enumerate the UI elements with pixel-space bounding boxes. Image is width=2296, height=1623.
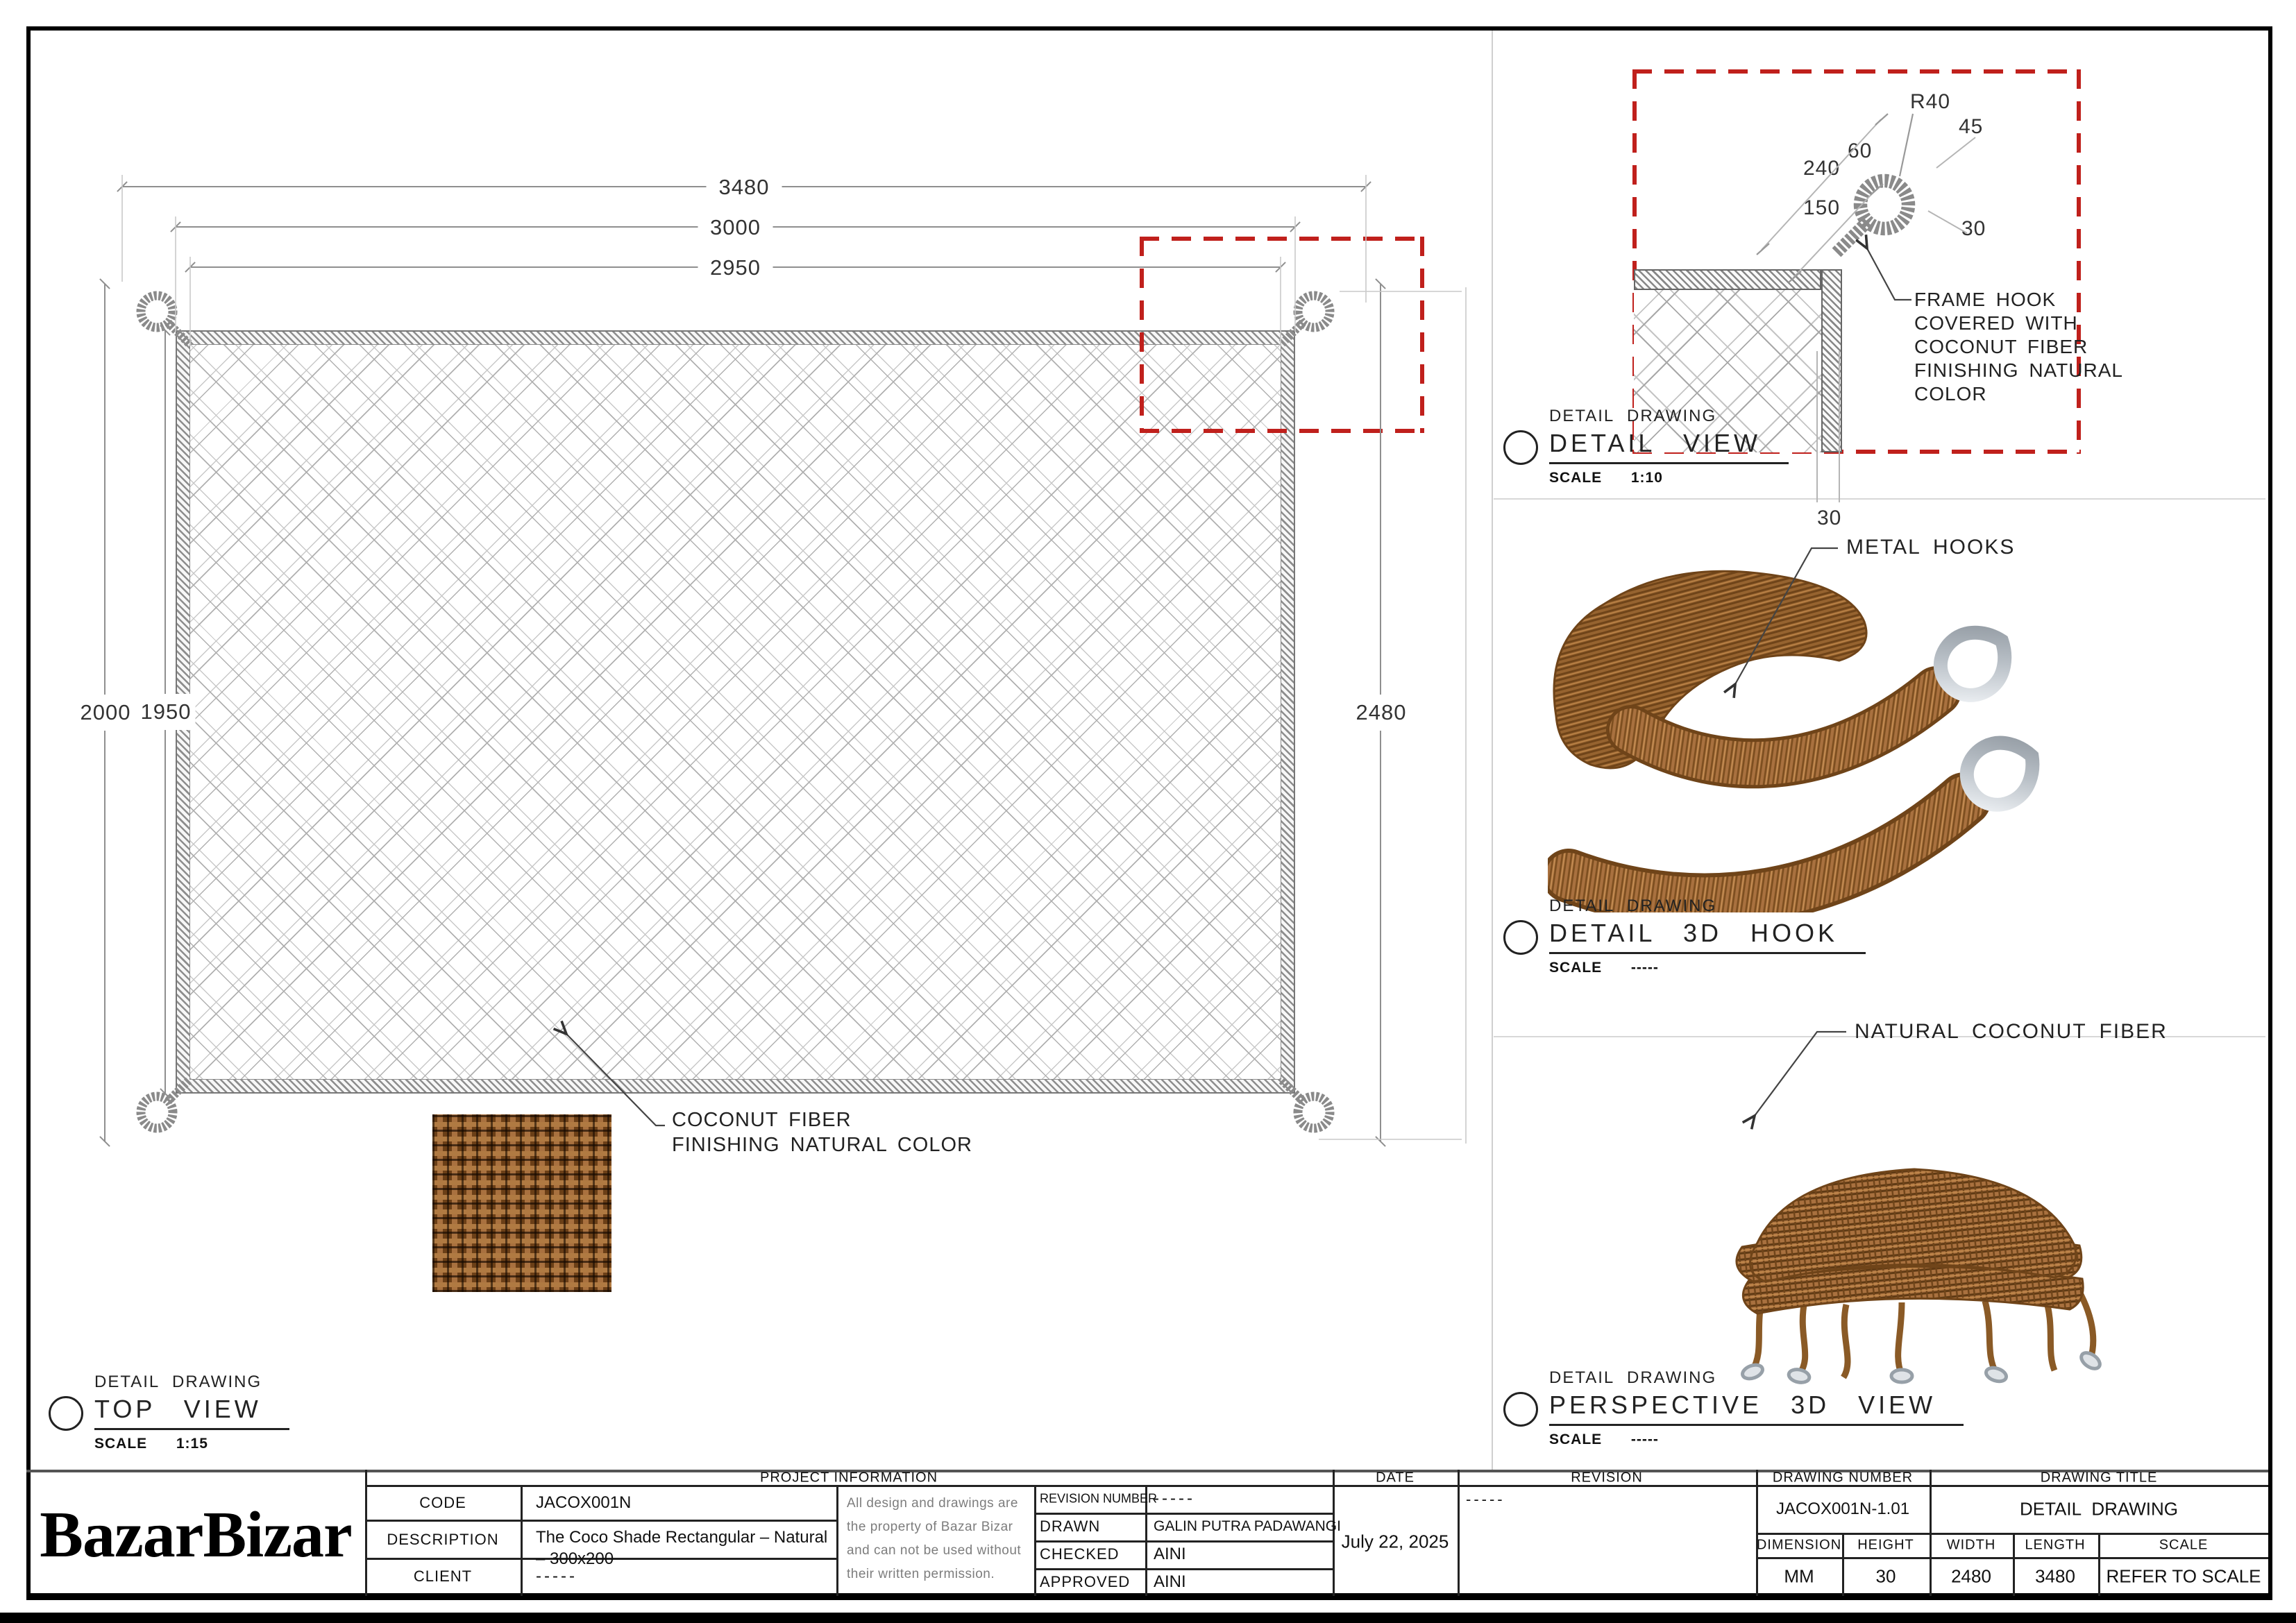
drawing-title-header: DRAWING TITLE bbox=[2041, 1470, 2158, 1486]
revision-number-label: REVISION NUMBER bbox=[1040, 1492, 1157, 1506]
drawing-title-value: DETAIL DRAWING bbox=[2020, 1499, 2178, 1520]
bottom-edge-bar bbox=[0, 1613, 2296, 1623]
checked-value: AINI bbox=[1154, 1545, 1186, 1564]
spec-value-width: 2480 bbox=[1951, 1566, 1991, 1588]
drawing-number-header: DRAWING NUMBER bbox=[1773, 1470, 1913, 1486]
approved-label: APPROVED bbox=[1040, 1573, 1130, 1591]
client-value: ----- bbox=[536, 1567, 577, 1586]
approved-value: AINI bbox=[1154, 1572, 1186, 1592]
description-value: The Coco Shade Rectangular – Natural – 3… bbox=[536, 1527, 830, 1570]
project-information-header: PROJECT INFORMATION bbox=[760, 1470, 938, 1486]
spec-value-scale: REFER TO SCALE bbox=[2107, 1566, 2261, 1588]
spec-header-scale: SCALE bbox=[2159, 1538, 2209, 1554]
drawing-sheet: 3480 3000 2950 2000 1950 2480 COCONUT FI… bbox=[0, 0, 2296, 1623]
revision-value: ----- bbox=[1466, 1490, 1505, 1509]
drawn-label: DRAWN bbox=[1040, 1518, 1100, 1536]
spec-value-dimension: MM bbox=[1784, 1566, 1814, 1588]
code-value: JACOX001N bbox=[536, 1493, 631, 1513]
revision-number-value: ----- bbox=[1154, 1489, 1195, 1509]
spec-header-height: HEIGHT bbox=[1857, 1538, 1914, 1554]
description-label: DESCRIPTION bbox=[387, 1531, 498, 1549]
title-block: PROJECT INFORMATION DATE REVISION DRAWIN… bbox=[0, 0, 2296, 1623]
date-header: DATE bbox=[1376, 1470, 1415, 1486]
spec-value-length: 3480 bbox=[2035, 1566, 2075, 1588]
spec-header-width: WIDTH bbox=[1947, 1538, 1996, 1554]
drawing-number-value: JACOX001N-1.01 bbox=[1776, 1499, 1909, 1519]
spec-header-length: LENGTH bbox=[2025, 1538, 2085, 1554]
checked-label: CHECKED bbox=[1040, 1545, 1120, 1563]
date-value: July 22, 2025 bbox=[1342, 1531, 1449, 1553]
code-label: CODE bbox=[419, 1494, 466, 1512]
spec-header-dimension: DIMENSION bbox=[1757, 1538, 1841, 1554]
drawn-value: GALIN PUTRA PADAWANGI bbox=[1154, 1518, 1341, 1535]
brand-logo: BazarBizar bbox=[40, 1497, 351, 1572]
client-label: CLIENT bbox=[414, 1567, 472, 1586]
spec-value-height: 30 bbox=[1876, 1566, 1896, 1588]
disclaimer-text: All design and drawings are the property… bbox=[847, 1492, 1027, 1586]
revision-header: REVISION bbox=[1571, 1470, 1643, 1486]
